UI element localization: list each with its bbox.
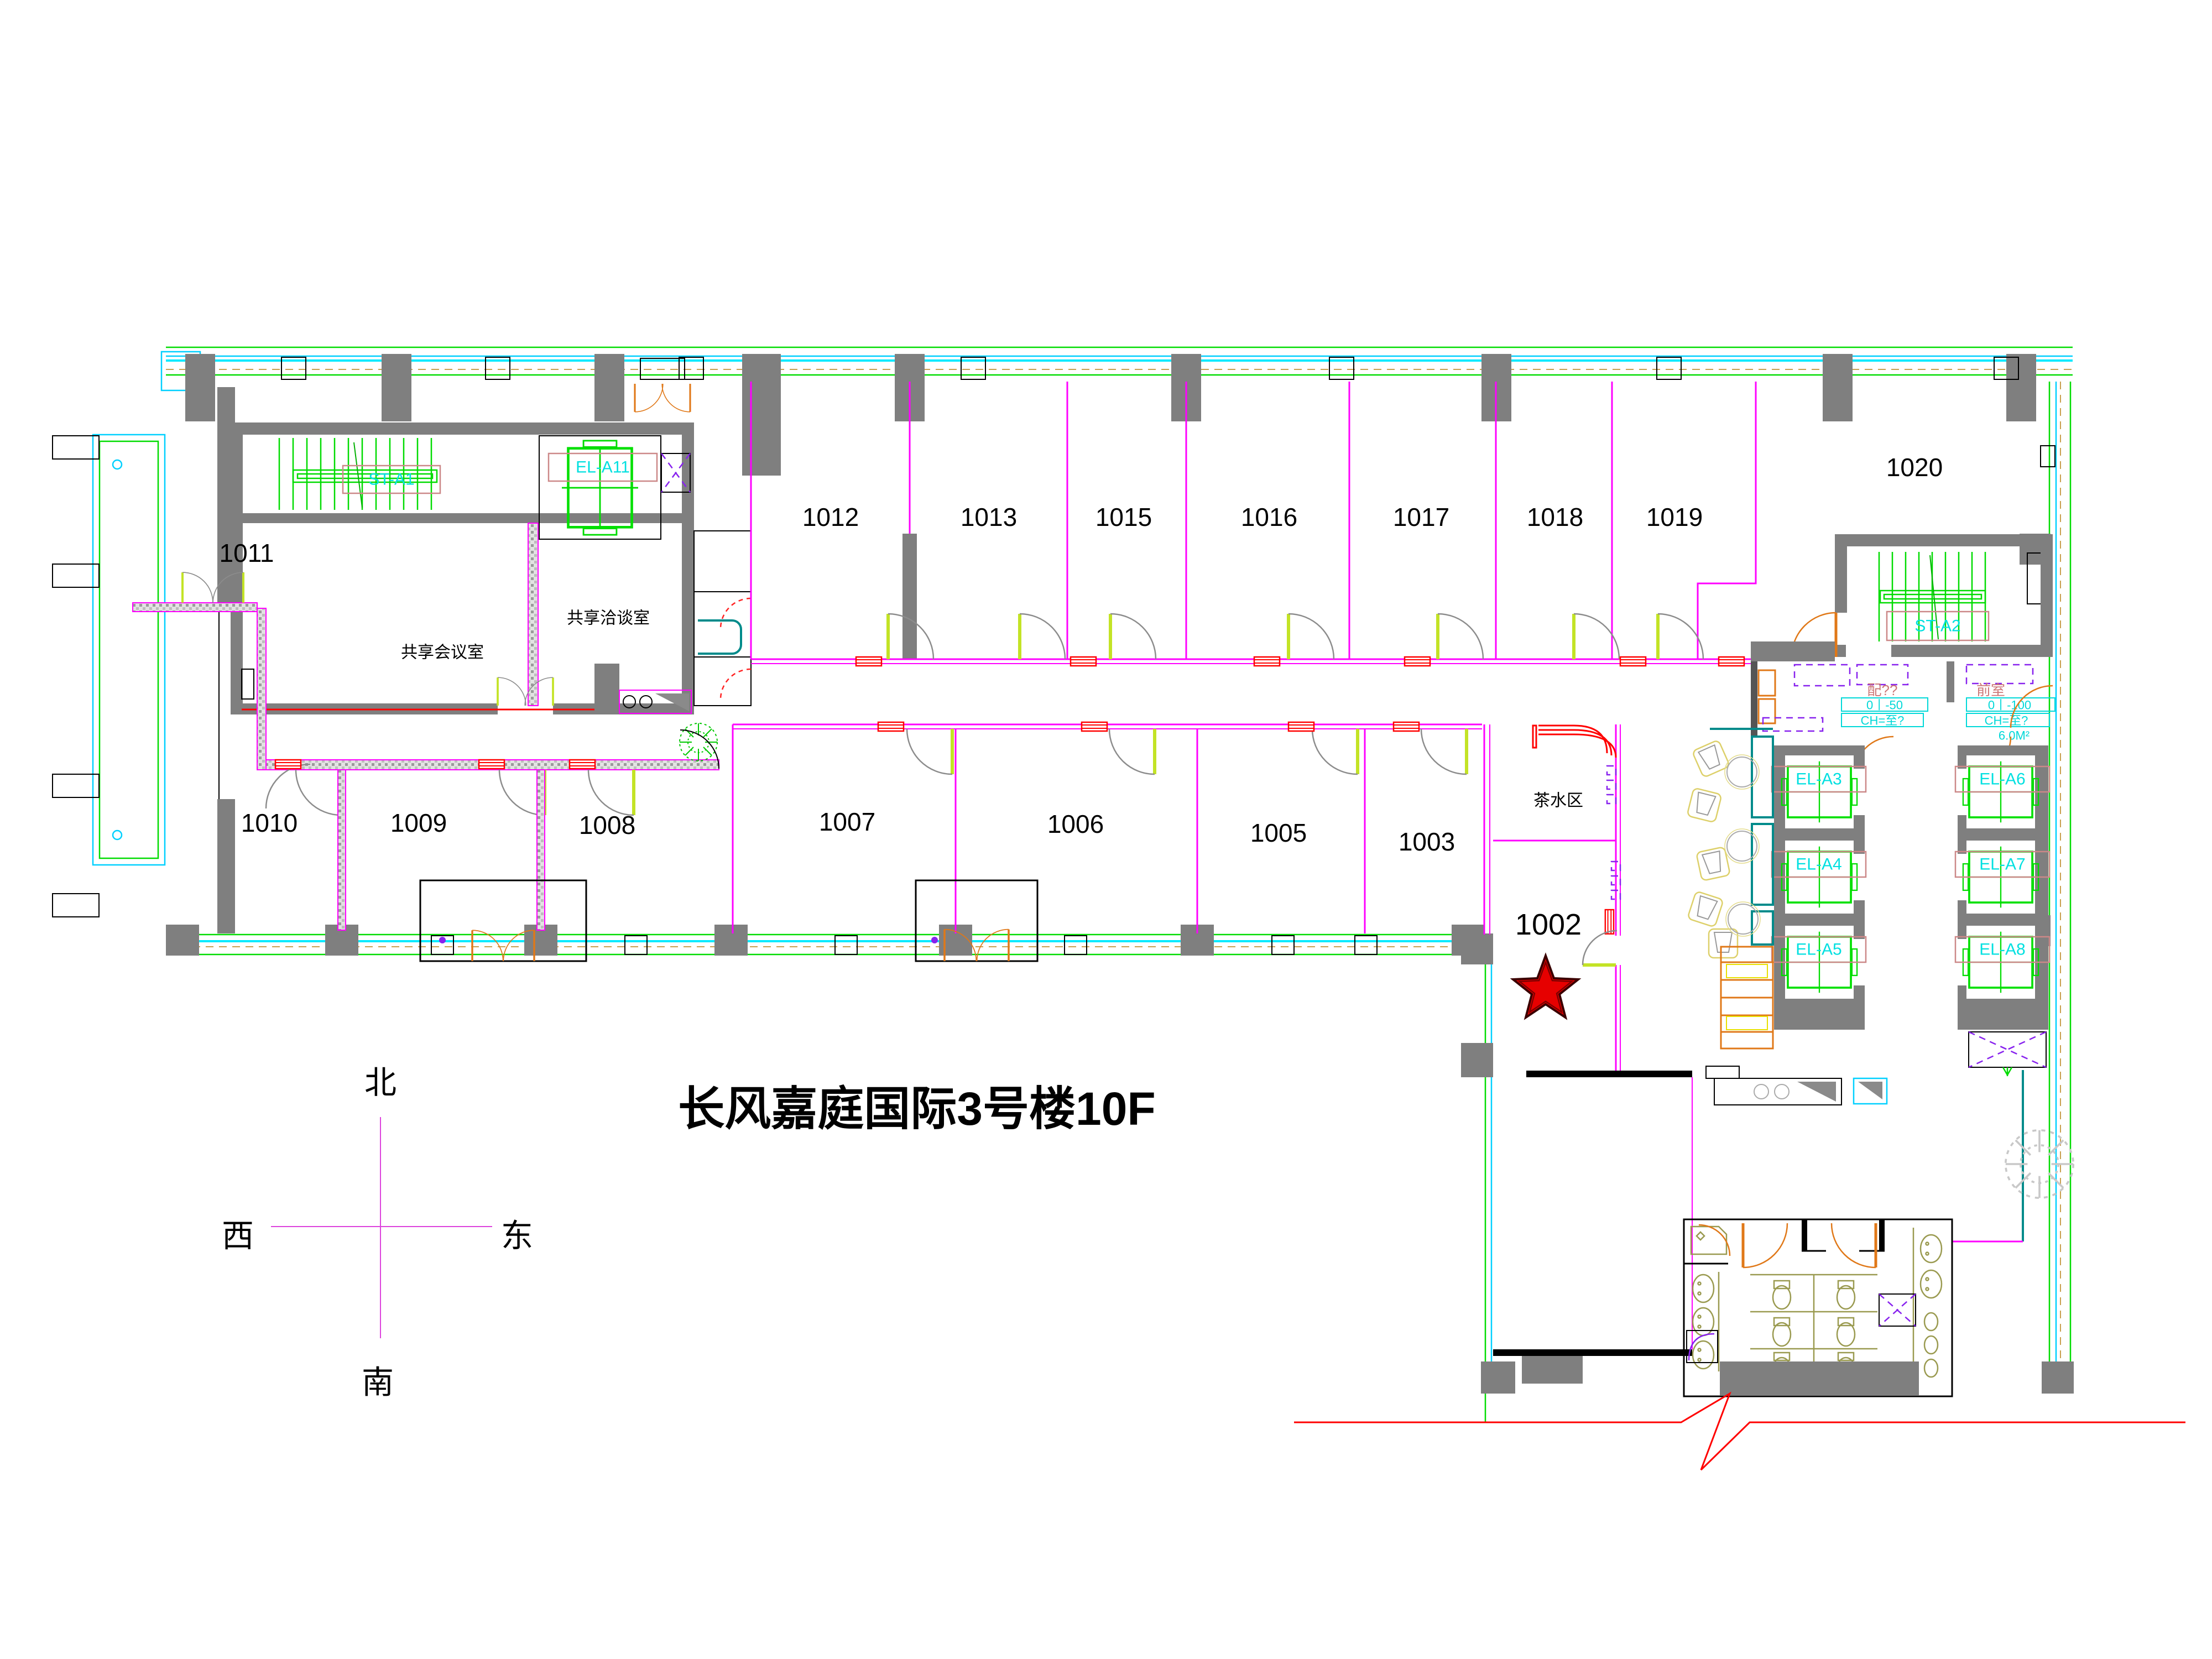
corridor-finish-curve <box>1533 726 1620 899</box>
anteroom-size-annotation: 0丨-100 <box>1988 698 2031 712</box>
room-1015-label: 1015 <box>1095 503 1152 531</box>
annex-counter <box>698 620 741 654</box>
stair-st-a2: ST-A2 <box>1792 534 2053 657</box>
balcony-alcove-1009 <box>420 880 586 961</box>
floor-plan-drawing: ST-A1 EL-A11 共享会议室 共享洽谈室 <box>0 0 2212 1659</box>
shaft-x-right-column <box>1969 1032 2046 1076</box>
room-1016-label: 1016 <box>1241 503 1297 531</box>
room-1005-label: 1005 <box>1250 818 1307 847</box>
compass-north-label: 北 <box>364 1065 397 1101</box>
lobby-tree-sketch <box>2006 1130 2073 1198</box>
stair-st-a1: ST-A1 <box>279 438 440 510</box>
room-1006-label: 1006 <box>1047 810 1104 838</box>
corridor-doors-south <box>296 729 1467 815</box>
corridor-plant <box>680 723 717 761</box>
facade-top <box>161 347 2073 476</box>
toilets <box>1684 1219 1952 1396</box>
toilet-south-wall <box>1720 1361 1919 1396</box>
room-1011-label: 1011 <box>220 539 274 567</box>
corridor <box>133 572 1754 1073</box>
reception-desk <box>1706 1066 1887 1105</box>
electrical-ch-annotation: CH=至? <box>1861 714 1905 728</box>
electrical-room-label: 配?? <box>1867 682 1898 698</box>
corridor-doors-north <box>888 614 1703 659</box>
site-break-line <box>1294 1394 2185 1470</box>
elevator-bank-left-column: EL-A3 EL-A4 EL-A5 <box>1772 745 1866 1030</box>
facade-bottom-mullions <box>431 936 1377 954</box>
room-1003-label: 1003 <box>1399 827 1455 856</box>
room-1013-label: 1013 <box>961 503 1017 531</box>
facade-bottom <box>166 925 1493 956</box>
room-labels: 1011 1012 1013 1015 1016 1017 1018 1019 … <box>220 453 1943 941</box>
star-marker <box>1513 956 1578 1018</box>
elevator-bank: EL-A3 EL-A4 EL-A5 EL-A6 EL-A7 EL-A8 <box>1706 745 2049 1105</box>
room-1002-label: 1002 <box>1515 908 1582 941</box>
locker-unit <box>1721 947 1773 1048</box>
toilet-shaft <box>1879 1294 1916 1326</box>
west-wall-lower <box>217 799 235 933</box>
floor-plan-canvas: ST-A1 EL-A11 共享会议室 共享洽谈室 <box>0 0 2212 1659</box>
stair-st-a1-label: ST-A1 <box>368 471 414 489</box>
compass: 北 南 西 东 <box>222 1065 533 1401</box>
elevator-el-a5-label: EL-A5 <box>1796 941 1841 959</box>
annex-door-lower <box>721 669 751 700</box>
anteroom-ch-annotation: CH=至? <box>1985 714 2028 728</box>
balcony-fins <box>53 436 99 917</box>
room-1020-label: 1020 <box>1886 453 1943 482</box>
shared-negotiation-room-label: 共享洽谈室 <box>567 609 650 628</box>
room-1009-label: 1009 <box>390 808 447 837</box>
page-title: 长风嘉庭国际3号楼10F <box>678 1083 1155 1135</box>
elevator-bank-right-column: EL-A6 EL-A7 EL-A8 <box>1955 745 2049 1030</box>
shared-meeting-room-label: 共享会议室 <box>401 644 484 662</box>
elevator-el-a11: EL-A11 <box>539 436 661 539</box>
electrical-size-annotation: 0丨-50 <box>1866 698 1903 712</box>
room-1019-east-wall <box>1698 382 1756 659</box>
balcony-alcove-1006 <box>916 880 1037 961</box>
west-balcony <box>53 387 235 933</box>
compass-south-label: 南 <box>362 1365 394 1401</box>
anteroom-label: 前室 <box>1976 682 2005 698</box>
annex-door-upper <box>721 598 751 629</box>
room-1008-label: 1008 <box>579 811 635 839</box>
tea-area-label: 茶水区 <box>1533 792 1583 810</box>
stair-st-a2-label: ST-A2 <box>1914 617 1960 635</box>
toilet-sinks-left <box>1693 1272 1719 1371</box>
core-top-strip-door <box>635 358 690 412</box>
elevator-el-a6-label: EL-A6 <box>1979 770 2025 789</box>
pocket-to-1010-door <box>266 764 310 808</box>
compass-west-label: 西 <box>222 1218 254 1254</box>
core-block: ST-A1 EL-A11 共享会议室 共享洽谈室 <box>231 358 751 714</box>
room-1007-label: 1007 <box>819 807 875 836</box>
room-1019-label: 1019 <box>1646 503 1703 531</box>
elevator-el-a11-label: EL-A11 <box>576 458 630 477</box>
facade-top-columns <box>185 354 2036 476</box>
mop-basin <box>1684 1225 1730 1264</box>
elevator-el-a4-label: EL-A4 <box>1796 855 1841 874</box>
door-thresholds <box>275 657 1744 934</box>
room-1018-label: 1018 <box>1527 503 1583 531</box>
toilet-sinks-right <box>1913 1228 1942 1377</box>
core-annex <box>694 531 751 706</box>
elevator-el-a8-label: EL-A8 <box>1979 941 2025 959</box>
anteroom-area-annotation: 6.0M² <box>1999 729 2030 743</box>
toilet-entry-doors <box>1743 1223 1876 1267</box>
right-wing-lower-room <box>1493 1071 1692 1384</box>
elevator-el-a3-label: EL-A3 <box>1796 770 1841 789</box>
meeting-room-double-door <box>498 677 553 706</box>
compass-east-label: 东 <box>501 1218 533 1254</box>
room-1012-label: 1012 <box>802 503 859 531</box>
room-1017-label: 1017 <box>1393 503 1449 531</box>
facade-west-right-wing <box>1461 933 1515 1422</box>
room-1010-label: 1010 <box>241 808 298 837</box>
elevator-el-a7-label: EL-A7 <box>1979 855 2025 874</box>
